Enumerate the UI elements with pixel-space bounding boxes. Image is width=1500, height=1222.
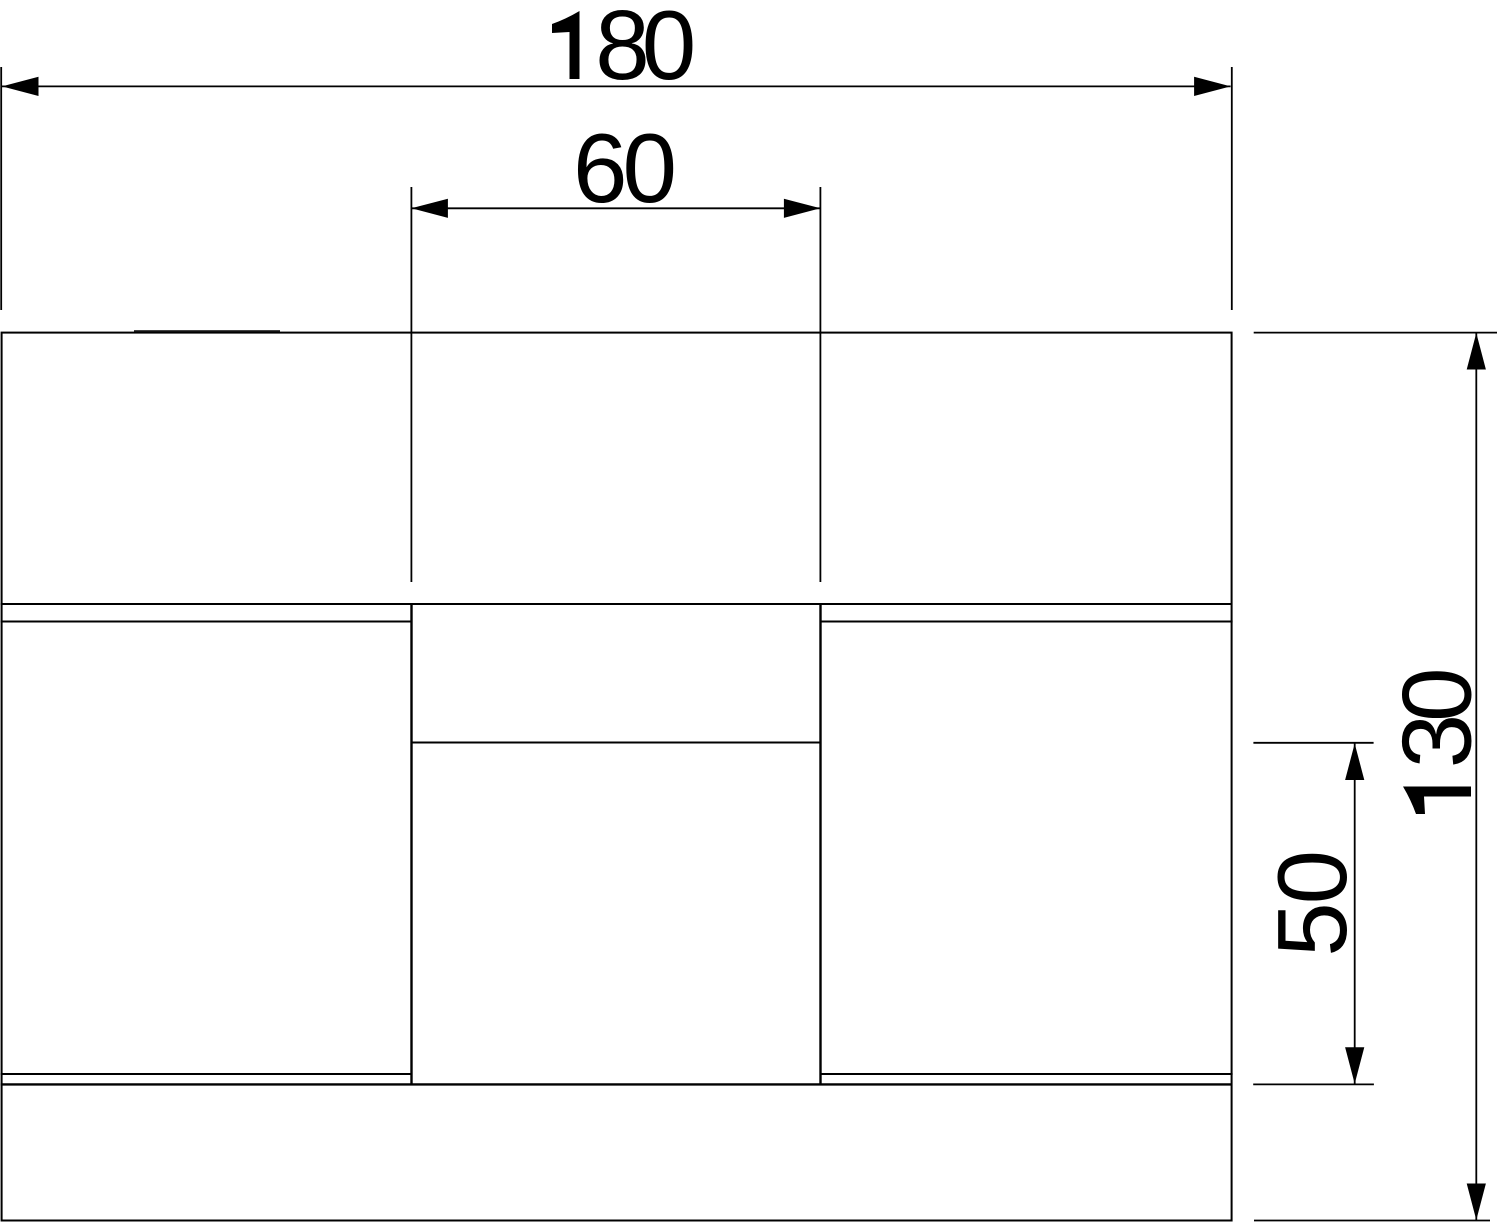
svg-text:60: 60 bbox=[573, 113, 677, 223]
svg-text:30: 30 bbox=[1382, 667, 1492, 768]
svg-text:50: 50 bbox=[1257, 850, 1367, 957]
svg-text:80: 80 bbox=[595, 0, 696, 100]
